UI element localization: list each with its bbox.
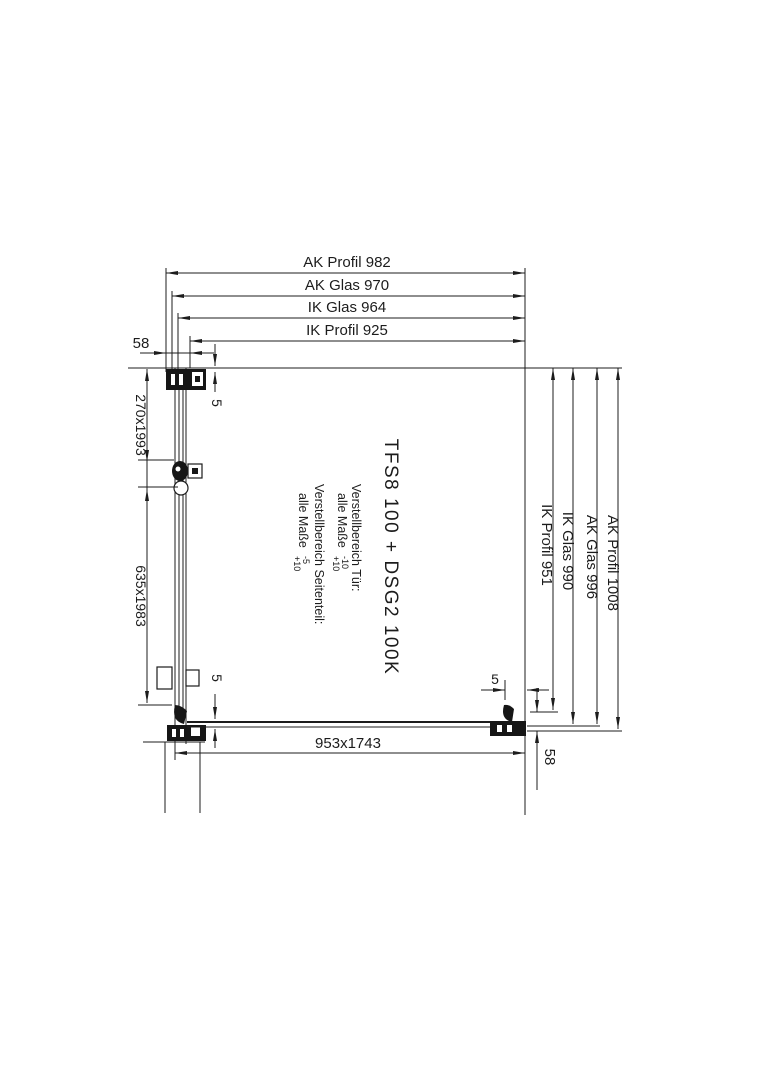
dim-label-ik-glas-width: IK Glas 964 (308, 299, 386, 316)
product-title: TFS8 100 + DSG2 100K (380, 439, 401, 675)
dim-label-ik-profil-width: IK Profil 925 (306, 322, 388, 339)
dim-label-side-panel-glass: 953x1743 (315, 735, 381, 752)
dim-label-ak-profil-height: AK Profil 1008 (604, 515, 621, 611)
left-dimension-group: 270x1993 635x1983 (133, 369, 178, 705)
glass-inset-dim-bottom-right: 5 (481, 671, 549, 700)
dim-label-fixed-glass: 270x1993 (133, 394, 149, 456)
side-adjust-prefix: alle Maße (296, 493, 310, 548)
wall-bracket-top (166, 369, 206, 390)
side-tolerance-plus: +10 (292, 556, 302, 571)
door-handle (157, 667, 199, 689)
dim-label-ak-glas-width: AK Glas 970 (305, 277, 389, 294)
dim-label-ik-profil-height: IK Profil 951 (538, 504, 555, 586)
dim-label-ik-glas-height: IK Glas 990 (559, 512, 576, 590)
door-assembly (157, 368, 206, 744)
glass-inset-dim-bottom-left: 5 (209, 674, 225, 748)
center-text-block: TFS8 100 + DSG2 100K Verstellbereich Tür… (292, 439, 401, 675)
door-adjust-label: Verstellbereich Tür: (349, 484, 363, 591)
bottom-dimension-group: 953x1743 (175, 735, 525, 760)
door-hinge (172, 461, 202, 495)
dim-label-wall-offset-top: 58 (133, 335, 150, 352)
shower-enclosure-plan-drawing: AK Profil 982 AK Glas 970 IK Glas 964 IK… (0, 0, 763, 1080)
technical-drawing-page: AK Profil 982 AK Glas 970 IK Glas 964 IK… (0, 0, 763, 1080)
right-dimension-group: IK Profil 951 IK Glas 990 AK Glas 996 AK… (527, 368, 622, 731)
dim-label-wall-offset-bottom: 58 (541, 749, 558, 766)
dim-label-door-glass: 635x1983 (133, 565, 149, 627)
corner-profile-bottom-right (490, 705, 526, 736)
side-panel (187, 705, 526, 736)
dim-label-inset-bottom-left: 5 (209, 674, 225, 682)
wall-offset-dim-top-left: 58 (133, 335, 214, 353)
top-dimension-group: AK Profil 982 AK Glas 970 IK Glas 964 IK… (166, 254, 525, 372)
door-tolerance-plus: +10 (331, 556, 341, 571)
side-adjust-label: Verstellbereich Seitenteil: (312, 484, 326, 624)
dim-label-inset-bottom-right: 5 (491, 671, 499, 687)
dim-label-inset-top-left: 5 (209, 399, 225, 407)
wall-offset-dim-bottom-right: 58 (537, 688, 558, 790)
dim-label-ak-profil-width: AK Profil 982 (303, 254, 391, 271)
door-adjust-prefix: alle Maße (335, 493, 349, 548)
dim-label-ak-glas-height: AK Glas 996 (583, 515, 600, 599)
